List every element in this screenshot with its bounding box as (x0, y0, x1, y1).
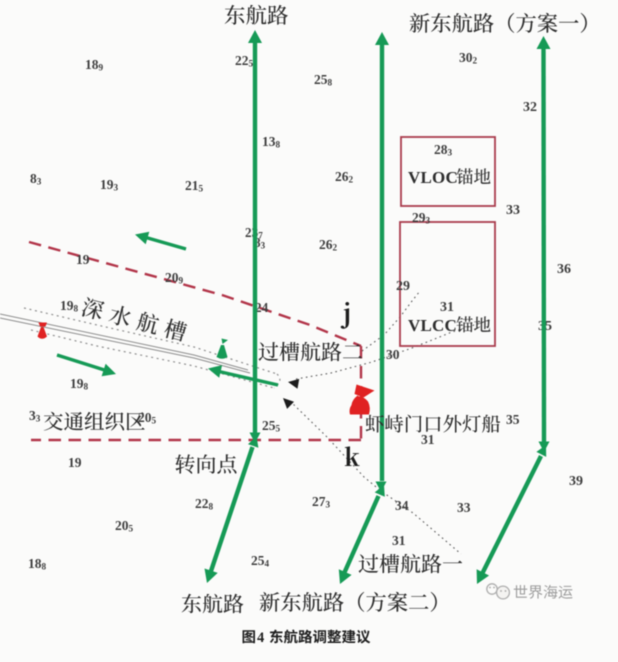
svg-text:35: 35 (506, 412, 520, 427)
svg-text:32: 32 (523, 100, 537, 115)
svg-text:30: 30 (386, 347, 400, 362)
svg-text:4: 4 (257, 630, 264, 646)
svg-text:VLOC: VLOC (408, 168, 458, 187)
svg-text:31: 31 (392, 533, 406, 548)
svg-text:19: 19 (76, 252, 90, 267)
svg-text:19: 19 (68, 455, 82, 470)
svg-text:VLCC: VLCC (408, 316, 457, 335)
svg-text:33: 33 (457, 500, 471, 515)
svg-text:39: 39 (569, 474, 583, 489)
svg-text:36: 36 (557, 262, 571, 277)
svg-text:31: 31 (440, 300, 454, 315)
svg-text:33: 33 (506, 203, 520, 218)
svg-text:34: 34 (395, 498, 409, 513)
svg-text:29: 29 (396, 279, 410, 294)
svg-text:31: 31 (421, 432, 435, 447)
